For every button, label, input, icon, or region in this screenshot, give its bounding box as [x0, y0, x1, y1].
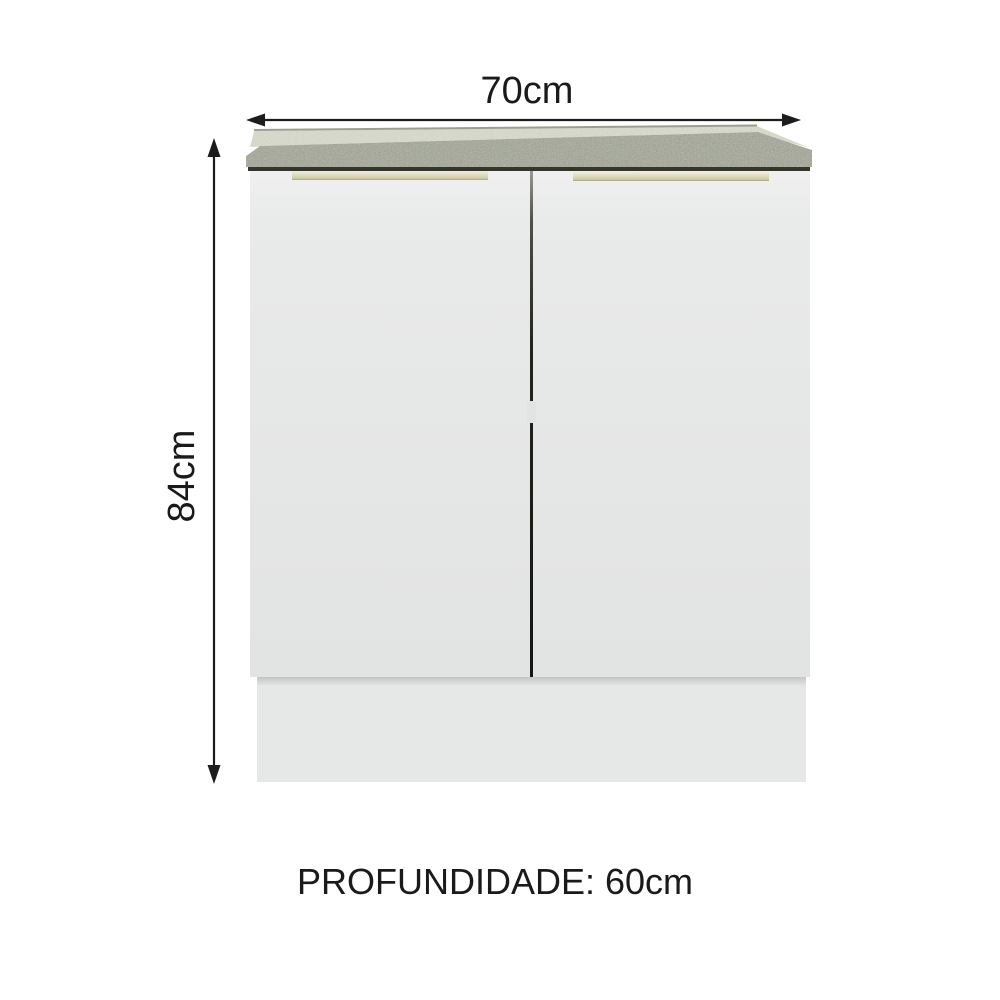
- right-door: [533, 169, 810, 677]
- base-panel-shadow: [257, 677, 806, 686]
- left-door-handle: [292, 171, 488, 180]
- cabinet-base: [257, 677, 806, 782]
- height-arrow: [208, 138, 221, 784]
- height-arrow-top-head: [208, 138, 221, 157]
- height-dimension-label: 84cm: [163, 376, 203, 576]
- height-arrow-bottom-head: [208, 765, 221, 784]
- countertop: [240, 118, 820, 174]
- width-dimension-label: 70cm: [422, 72, 632, 110]
- product-dimension-diagram: 70cm 84cm PROFUNDIDADE: 60cm: [0, 0, 1000, 1000]
- door-hinge-highlight: [527, 401, 536, 423]
- depth-dimension-label: PROFUNDIDADE: 60cm: [245, 864, 745, 900]
- right-door-handle: [573, 172, 769, 181]
- cabinet-base-panel: [257, 677, 806, 782]
- width-arrow: [246, 114, 801, 127]
- width-arrow-left-head: [246, 114, 265, 127]
- cabinet-illustration: [0, 0, 1000, 1000]
- width-arrow-right-head: [782, 114, 801, 127]
- left-door: [250, 169, 530, 677]
